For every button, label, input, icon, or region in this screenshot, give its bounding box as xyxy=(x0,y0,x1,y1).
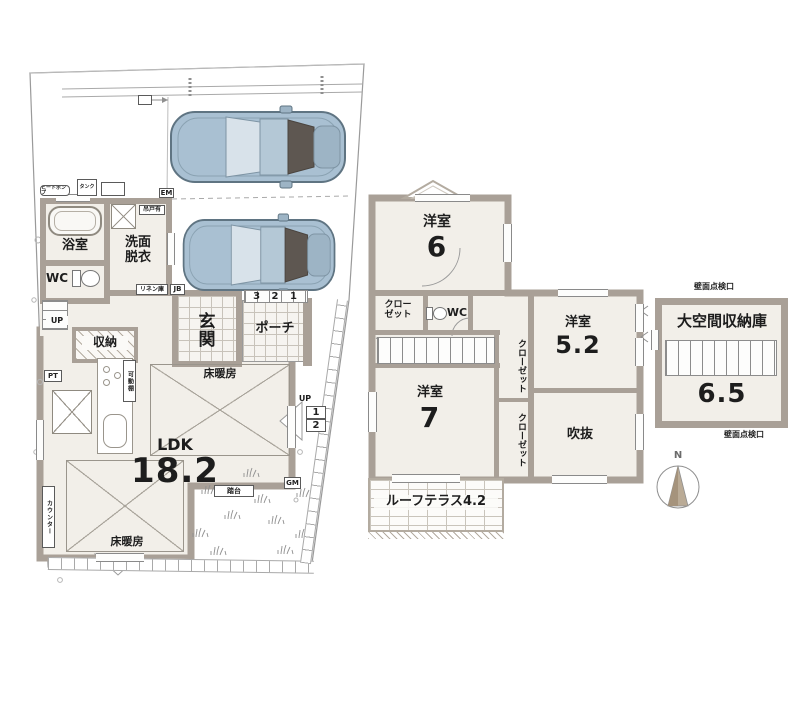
tank-box: タンク xyxy=(77,179,97,196)
floor-plan-canvas: 浴室 洗面 脱衣 WC 玄関 3 2 1 ポーチ 収納 UP LDK 18.2 … xyxy=(0,0,800,727)
linen-label: リネン庫 xyxy=(140,287,164,293)
gas-meter-label: GM xyxy=(286,480,299,487)
window xyxy=(635,414,644,450)
attic-storage-label: 大空間収納庫 xyxy=(660,313,784,330)
entrance-label: 玄関 xyxy=(194,301,214,359)
car-top-view-1 xyxy=(168,104,349,190)
wc-1f-label: WC xyxy=(42,272,72,286)
room6-size: 6 xyxy=(402,231,472,263)
room52-label: 洋室 xyxy=(548,316,608,331)
room52-size: 5.2 xyxy=(548,332,608,360)
bathroom-label: 浴室 xyxy=(48,239,102,254)
toilet-icon-2f xyxy=(426,307,433,320)
linen-box: リネン庫 xyxy=(136,284,168,295)
storage-1f-label: 収納 xyxy=(82,336,128,350)
stove-burner-icon xyxy=(114,372,121,379)
window xyxy=(368,392,377,432)
window xyxy=(392,474,460,483)
room7-label: 洋室 xyxy=(398,386,462,401)
porch-side-wall xyxy=(303,298,312,366)
ldk-size: 18.2 xyxy=(125,452,225,491)
wall-2f xyxy=(528,388,638,393)
up-label-outside: UP xyxy=(294,394,316,403)
stairs-2f xyxy=(377,337,495,364)
heat-pump-box: ヒートポンプ xyxy=(40,185,70,196)
window xyxy=(552,475,607,484)
window xyxy=(287,406,296,448)
step1-label: 1 xyxy=(313,408,320,418)
inspection-port-bottom: 壁面点検口 xyxy=(714,430,774,439)
movable-shelf-box: 可動棚 xyxy=(123,360,136,402)
pantry-box: PT xyxy=(44,370,62,382)
window xyxy=(96,553,144,562)
terrace-hatch-edge xyxy=(368,532,504,539)
washroom-label: 洗面 脱衣 xyxy=(106,236,170,266)
toilet-bowl-icon-1f xyxy=(81,270,100,287)
room6-label: 洋室 xyxy=(402,214,472,230)
movable-shelf-label: 可動棚 xyxy=(127,371,133,392)
wall-2f xyxy=(496,398,532,402)
floor-heating-label-2: 床暖房 xyxy=(92,536,162,549)
attic-size: 6.5 xyxy=(690,380,754,410)
toilet-bowl-icon-2f xyxy=(433,307,447,320)
window xyxy=(651,330,659,350)
jb-label: JB xyxy=(174,286,182,293)
step2-label: 2 xyxy=(313,421,320,431)
hanging-cabinet-box: 吊戸有 xyxy=(139,205,165,215)
window xyxy=(415,194,470,202)
entry-step-numbers: 3 2 1 xyxy=(250,291,304,303)
closet-2f-label: クロー ゼット xyxy=(375,300,421,321)
roof-terrace-label: ルーフテラス4.2 xyxy=(374,495,498,510)
stepstool-label: 踏台 xyxy=(227,488,241,495)
washer-space-icon xyxy=(111,204,136,229)
floor-heating-label-1: 床暖房 xyxy=(185,368,255,381)
stepstool-box: 踏台 xyxy=(214,485,254,497)
window xyxy=(503,224,512,262)
utility-box xyxy=(138,95,152,105)
window xyxy=(36,420,44,460)
kitchen-sink-icon xyxy=(103,414,127,448)
outside-step-1: 1 xyxy=(306,406,326,419)
em-box: EM xyxy=(159,188,174,198)
wall-2f xyxy=(372,330,500,335)
jb-box: JB xyxy=(170,284,185,295)
room7-size: 7 xyxy=(398,402,462,434)
counter-box: カウンター xyxy=(42,486,55,548)
outside-step-2: 2 xyxy=(306,419,326,432)
heat-pump-label: ヒートポンプ xyxy=(41,186,69,196)
porch-label: ポーチ xyxy=(246,322,304,337)
bathtub-icon xyxy=(48,206,102,236)
car-top-view-2 xyxy=(181,212,338,298)
tank-label: タンク xyxy=(79,185,94,190)
stove-burner-icon xyxy=(103,366,110,373)
wall-2f xyxy=(528,293,534,478)
gas-meter-box: GM xyxy=(284,477,301,489)
hall-steps xyxy=(42,300,68,330)
wall-2f xyxy=(372,290,508,296)
inspection-port-top: 壁面点検口 xyxy=(684,282,744,291)
toilet-icon-1f xyxy=(72,270,81,287)
compass-north-label: N xyxy=(670,450,686,462)
window xyxy=(635,304,644,332)
closet-a-label: クローゼット xyxy=(504,335,526,397)
window xyxy=(635,338,644,366)
em-label: EM xyxy=(161,190,173,197)
refrigerator-space-icon xyxy=(52,390,92,434)
stove-burner-icon xyxy=(103,379,110,386)
wall-2f xyxy=(468,294,473,332)
attic-stairs xyxy=(665,340,777,376)
wc-2f-label: WC xyxy=(446,307,468,320)
window xyxy=(558,289,608,297)
void-label: 吹抜 xyxy=(552,428,608,443)
counter-label: カウンター xyxy=(46,500,52,535)
hanging-cabinet-label: 吊戸有 xyxy=(143,207,161,213)
up-label-1f: UP xyxy=(46,316,68,325)
shelf-box xyxy=(101,182,125,196)
pantry-label: PT xyxy=(48,373,58,380)
closet-b-label: クローゼット xyxy=(504,404,526,476)
